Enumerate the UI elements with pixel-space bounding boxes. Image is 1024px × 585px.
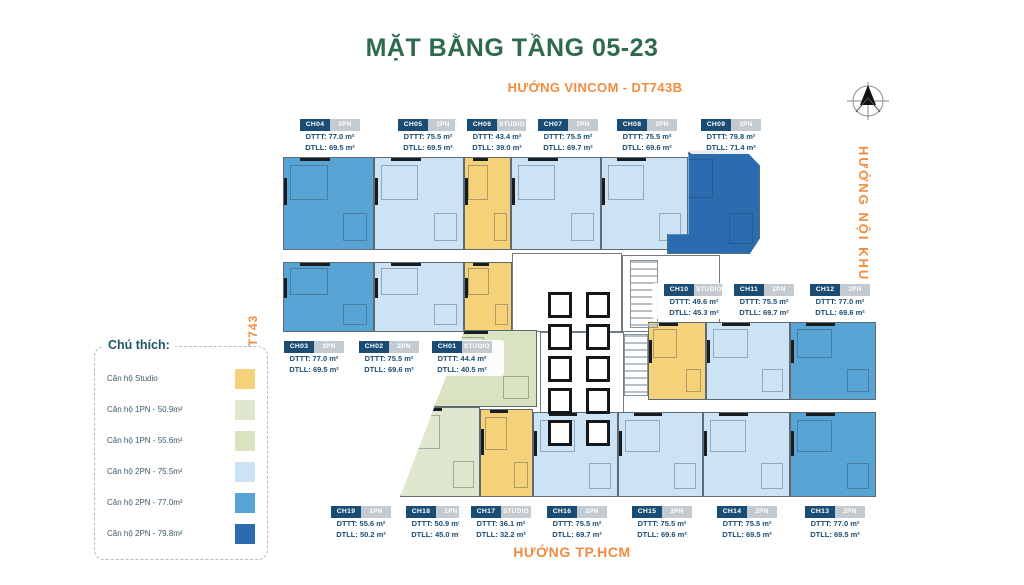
unit-type: 2PN: [568, 119, 598, 131]
unit-area-dtl: DTLL: 71.4 m²: [689, 143, 773, 153]
unit-code: CH15: [632, 506, 662, 518]
unit-code: CH02: [359, 341, 389, 353]
unit-label-ch01: CH01STUDIODTTT: 44.4 m²DTLL: 40.5 m²: [420, 340, 504, 376]
unit-area-dtl: DTLL: 69.6 m²: [605, 143, 689, 153]
unit-type: 2PN: [389, 341, 419, 353]
unit-code-pill: CH152PN: [620, 506, 704, 518]
unit-area-dtt: DTTT: 55.6 m²: [319, 519, 403, 529]
unit-code: CH08: [617, 119, 647, 131]
unit-area-dtl: DTLL: 69.5 m²: [705, 530, 789, 540]
legend-item-label: Căn hộ 2PN - 77.0m²: [107, 498, 183, 507]
unit-type: STUDIO: [501, 506, 531, 518]
unit-area-dtt: DTTT: 75.5 m²: [347, 354, 431, 364]
unit-code-pill: CH122PN: [798, 284, 882, 296]
unit-label-ch19: CH191PNDTTT: 55.6 m²DTLL: 50.2 m²: [319, 505, 403, 541]
unit-code-pill: CH092PN: [689, 119, 773, 131]
unit-code-pill: CH162PN: [535, 506, 619, 518]
legend-item-swatch: [235, 400, 255, 420]
unit-type: 2PN: [840, 284, 870, 296]
unit-area-dtt: DTTT: 77.0 m²: [793, 519, 877, 529]
unit-area-dtt: DTTT: 77.0 m²: [288, 132, 372, 142]
unit-code-pill: CH01STUDIO: [420, 341, 504, 353]
unit-area-dtl: DTLL: 40.5 m²: [420, 365, 504, 375]
legend-item-label: Căn hộ 1PN - 55.6m²: [107, 436, 183, 445]
legend-item: Căn hộ 1PN - 55.6m²: [107, 425, 255, 456]
unit-code-pill: CH022PN: [347, 341, 431, 353]
unit-label-ch08: CH082PNDTTT: 75.5 m²DTLL: 69.6 m²: [605, 118, 689, 154]
floorplan-page: MẶT BẰNG TẦNG 05-23 HƯỚNG VINCOM - DT743…: [0, 0, 1024, 585]
legend-item-label: Căn hộ Studio: [107, 374, 158, 383]
legend-item: Căn hộ 2PN - 79.8m²: [107, 518, 255, 549]
unit-label-ch04: CH042PNDTTT: 77.0 m²DTLL: 69.5 m²: [288, 118, 372, 154]
unit-type: STUDIO: [462, 341, 492, 353]
legend-item-swatch: [235, 369, 255, 389]
unit-type: 2PN: [647, 119, 677, 131]
unit-area-dtt: DTTT: 36.1 m²: [459, 519, 543, 529]
legend-item-swatch: [235, 462, 255, 482]
unit-code-pill: CH032PN: [272, 341, 356, 353]
unit-label-ch02: CH022PNDTTT: 75.5 m²DTLL: 69.6 m²: [347, 340, 431, 376]
unit-area-dtt: DTTT: 77.0 m²: [798, 297, 882, 307]
unit-area-dtl: DTLL: 69.6 m²: [347, 365, 431, 375]
unit-code: CH05: [398, 119, 428, 131]
unit-type: 2PN: [764, 284, 794, 296]
unit-type: 2PN: [662, 506, 692, 518]
unit-code-pill: CH112PN: [722, 284, 806, 296]
unit-type: 2PN: [577, 506, 607, 518]
legend-item: Căn hộ 2PN - 75.5m²: [107, 456, 255, 487]
unit-area-dtt: DTTT: 75.5 m²: [620, 519, 704, 529]
legend-item: Căn hộ 2PN - 77.0m²: [107, 487, 255, 518]
legend-item-label: Căn hộ 2PN - 79.8m²: [107, 529, 183, 538]
unit-area-dtl: DTLL: 50.2 m²: [319, 530, 403, 540]
unit-type: 2PN: [314, 341, 344, 353]
unit-code: CH07: [538, 119, 568, 131]
unit-label-ch15: CH152PNDTTT: 75.5 m²DTLL: 69.6 m²: [620, 505, 704, 541]
unit-area-dtl: DTLL: 69.5 m²: [272, 365, 356, 375]
unit-code: CH18: [406, 506, 436, 518]
unit-type: 1PN: [361, 506, 391, 518]
unit-label-ch14: CH142PNDTTT: 75.5 m²DTLL: 69.5 m²: [705, 505, 789, 541]
legend-item-swatch: [235, 524, 255, 544]
unit-area-dtl: DTLL: 69.6 m²: [620, 530, 704, 540]
legend-item-swatch: [235, 493, 255, 513]
unit-type: 2PN: [330, 119, 360, 131]
legend-item: Căn hộ Studio: [107, 363, 255, 394]
unit-code: CH06: [467, 119, 497, 131]
legend-items: Căn hộ StudioCăn hộ 1PN - 50.9m²Căn hộ 1…: [107, 363, 255, 549]
unit-code: CH11: [734, 284, 764, 296]
unit-code-pill: CH17STUDIO: [459, 506, 543, 518]
unit-code: CH19: [331, 506, 361, 518]
unit-area-dtt: DTTT: 75.5 m²: [605, 132, 689, 142]
unit-code-pill: CH191PN: [319, 506, 403, 518]
unit-code: CH03: [284, 341, 314, 353]
unit-code-pill: CH082PN: [605, 119, 689, 131]
legend-item-label: Căn hộ 1PN - 50.9m²: [107, 405, 183, 414]
unit-label-ch07: CH072PNDTTT: 75.5 m²DTLL: 69.7 m²: [526, 118, 610, 154]
unit-area-dtl: DTLL: 69.6 m²: [798, 308, 882, 318]
unit-label-ch13: CH132PNDTTT: 77.0 m²DTLL: 69.5 m²: [793, 505, 877, 541]
unit-label-ch12: CH122PNDTTT: 77.0 m²DTLL: 69.6 m²: [798, 283, 882, 319]
unit-code: CH01: [432, 341, 462, 353]
unit-label-ch09: CH092PNDTTT: 79.8 m²DTLL: 71.4 m²: [689, 118, 773, 154]
unit-area-dtl: DTLL: 69.7 m²: [526, 143, 610, 153]
unit-code-pill: CH072PN: [526, 119, 610, 131]
unit-area-dtl: DTLL: 69.5 m²: [288, 143, 372, 153]
unit-code: CH04: [300, 119, 330, 131]
unit-area-dtt: DTTT: 75.5 m²: [705, 519, 789, 529]
unit-area-dtt: DTTT: 79.8 m²: [689, 132, 773, 142]
unit-code-pill: CH142PN: [705, 506, 789, 518]
unit-type: STUDIO: [694, 284, 724, 296]
unit-area-dtt: DTTT: 75.5 m²: [722, 297, 806, 307]
unit-area-dtl: DTLL: 69.7 m²: [535, 530, 619, 540]
unit-code: CH10: [664, 284, 694, 296]
unit-type: 2PN: [731, 119, 761, 131]
unit-type: 2PN: [747, 506, 777, 518]
unit-area-dtl: DTLL: 32.2 m²: [459, 530, 543, 540]
unit-label-ch03: CH032PNDTTT: 77.0 m²DTLL: 69.5 m²: [272, 340, 356, 376]
legend-item-label: Căn hộ 2PN - 75.5m²: [107, 467, 183, 476]
unit-type: 2PN: [428, 119, 458, 131]
unit-code-pill: CH042PN: [288, 119, 372, 131]
unit-code: CH13: [805, 506, 835, 518]
unit-code: CH16: [547, 506, 577, 518]
unit-area-dtt: DTTT: 77.0 m²: [272, 354, 356, 364]
legend-title: Chú thích:: [103, 338, 175, 352]
unit-area-dtl: DTLL: 69.5 m²: [793, 530, 877, 540]
legend: Chú thích: Căn hộ StudioCăn hộ 1PN - 50.…: [94, 346, 268, 560]
legend-item-swatch: [235, 431, 255, 451]
unit-area-dtl: DTLL: 69.7 m²: [722, 308, 806, 318]
unit-code: CH12: [810, 284, 840, 296]
unit-type: STUDIO: [497, 119, 527, 131]
unit-area-dtt: DTTT: 75.5 m²: [535, 519, 619, 529]
unit-label-ch17: CH17STUDIODTTT: 36.1 m²DTLL: 32.2 m²: [459, 505, 543, 541]
unit-type: 2PN: [835, 506, 865, 518]
unit-area-dtt: DTTT: 75.5 m²: [526, 132, 610, 142]
unit-code: CH09: [701, 119, 731, 131]
unit-code: CH17: [471, 506, 501, 518]
unit-label-ch11: CH112PNDTTT: 75.5 m²DTLL: 69.7 m²: [722, 283, 806, 319]
unit-code-pill: CH132PN: [793, 506, 877, 518]
unit-area-dtt: DTTT: 44.4 m²: [420, 354, 504, 364]
unit-label-ch16: CH162PNDTTT: 75.5 m²DTLL: 69.7 m²: [535, 505, 619, 541]
unit-code: CH14: [717, 506, 747, 518]
legend-item: Căn hộ 1PN - 50.9m²: [107, 394, 255, 425]
